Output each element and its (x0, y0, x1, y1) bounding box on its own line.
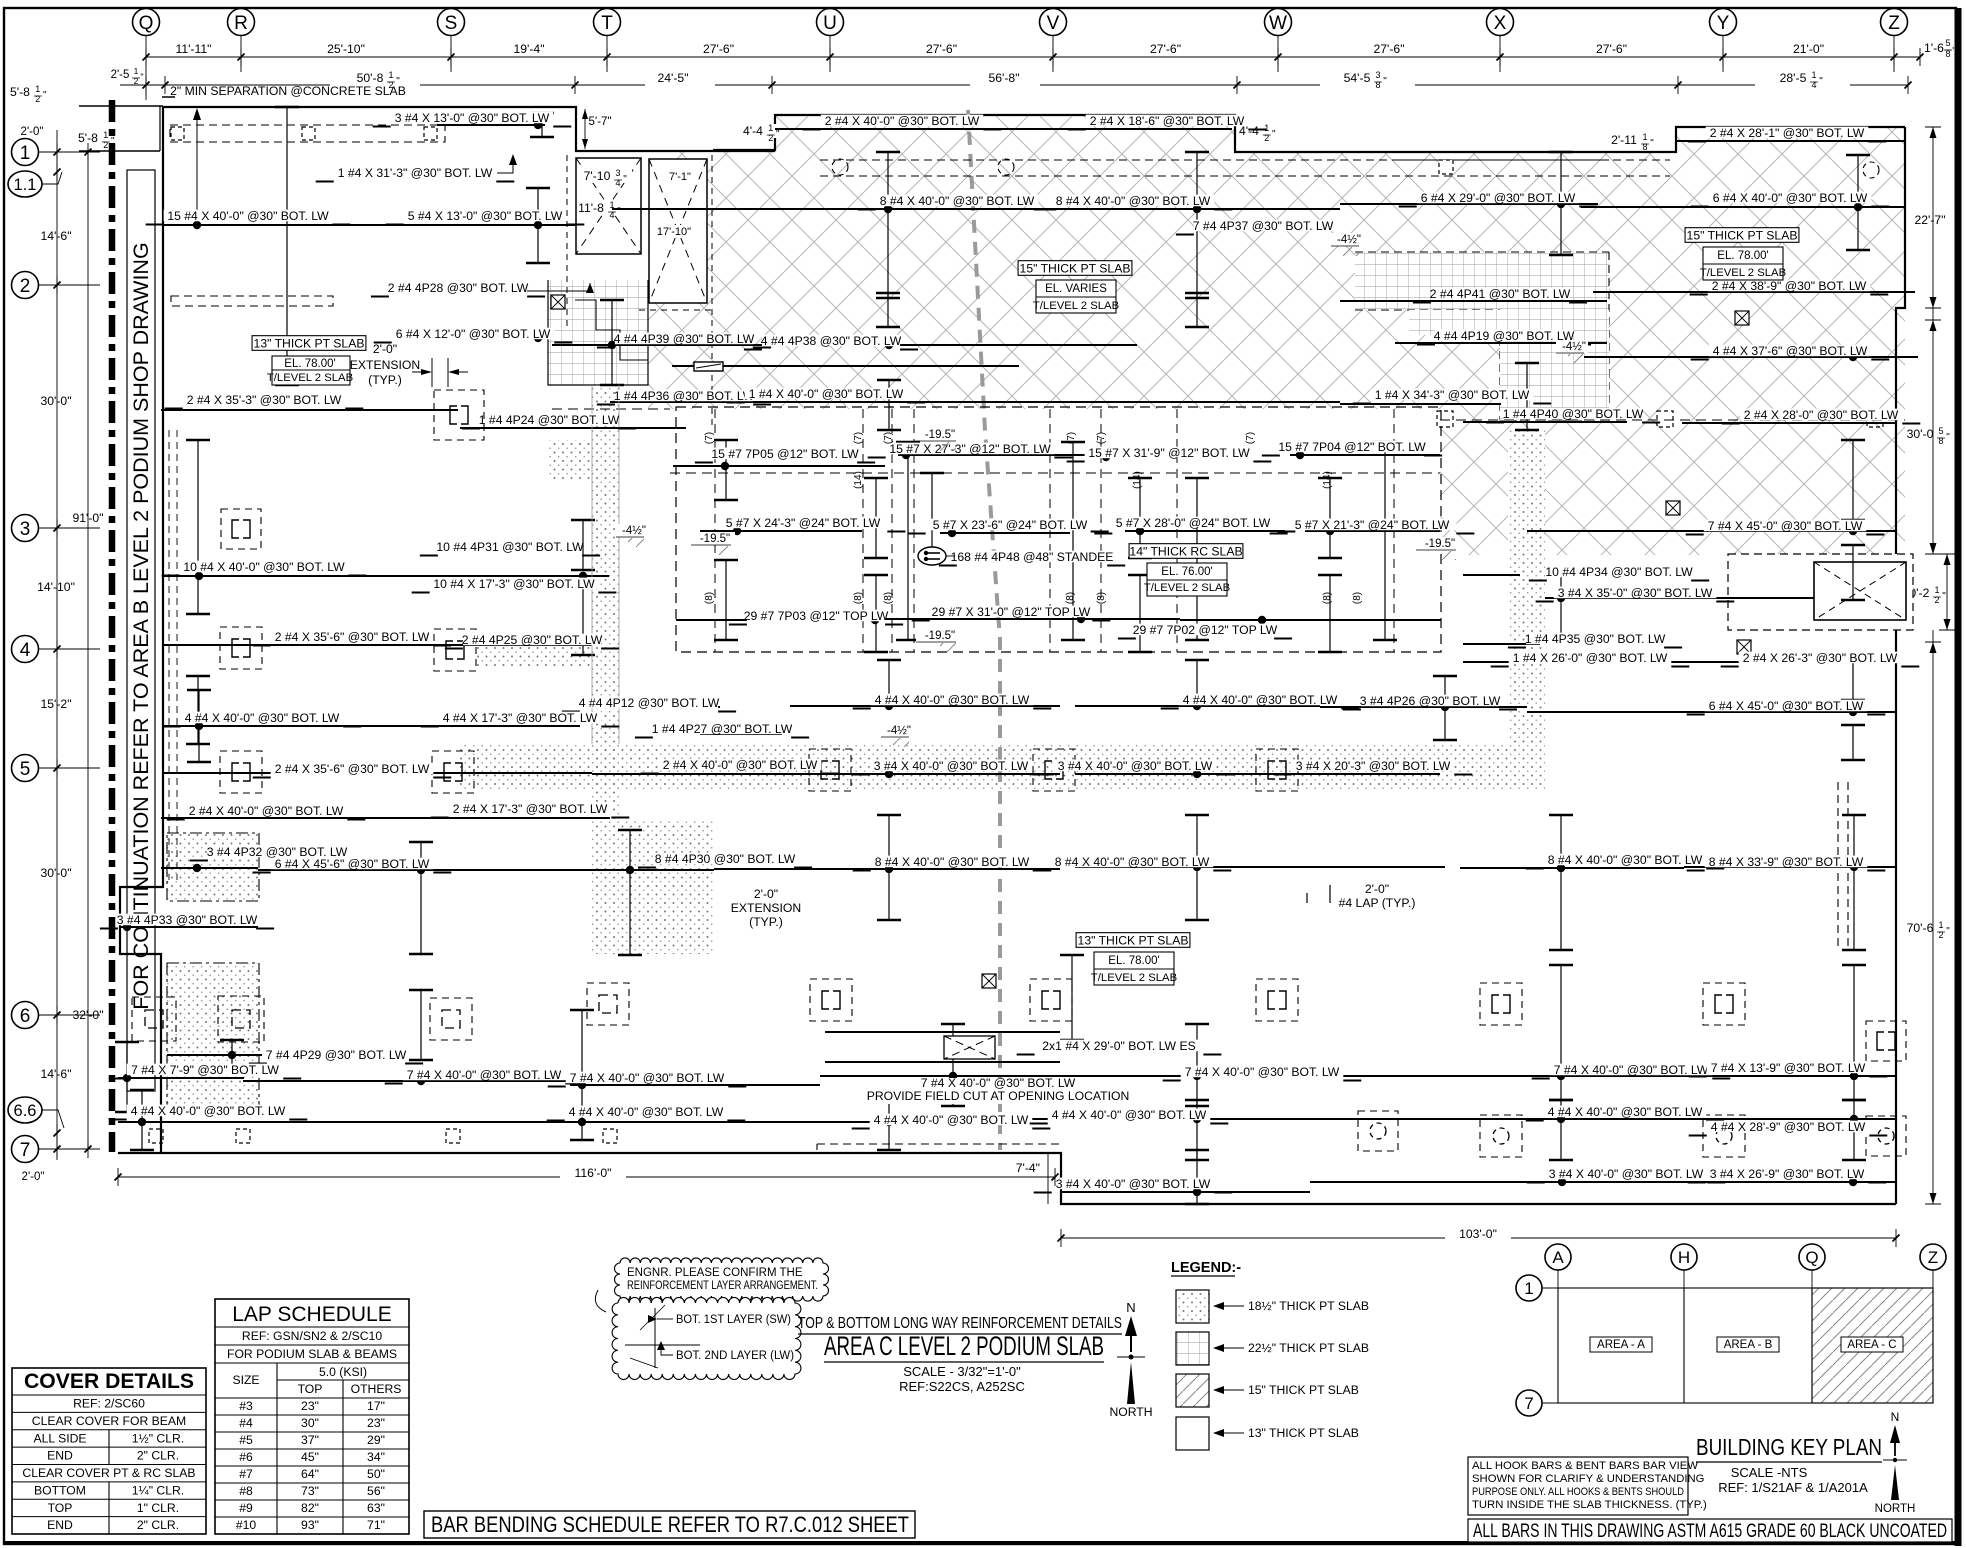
svg-text:1 #4 4P24 @30" BOT. LW: 1 #4 4P24 @30" BOT. LW (479, 413, 620, 427)
svg-text:-4½": -4½" (887, 725, 911, 737)
svg-text:CLEAR COVER FOR BEAM: CLEAR COVER FOR BEAM (32, 1414, 186, 1428)
svg-text:2 #4 X 26'-3" @30" BOT. LW: 2 #4 X 26'-3" @30" BOT. LW (1743, 651, 1898, 665)
svg-text:TOP & BOTTOM LONG WAY REINFORC: TOP & BOTTOM LONG WAY REINFORCEMENT DETA… (798, 1315, 1122, 1332)
svg-text:8: 8 (1938, 436, 1943, 446)
svg-text:SHOWN FOR CLARIFY & UNDERSTAND: SHOWN FOR CLARIFY & UNDERSTANDING (1472, 1473, 1704, 1485)
svg-text:15" THICK PT SLAB: 15" THICK PT SLAB (1248, 1383, 1359, 1397)
svg-text:2'-0": 2'-0" (754, 887, 778, 901)
svg-text:ALL SIDE: ALL SIDE (33, 1431, 86, 1445)
svg-text:30": 30" (301, 1416, 319, 1430)
svg-text:29 #7 X 31'-0" @12" TOP LW: 29 #7 X 31'-0" @12" TOP LW (932, 605, 1091, 619)
svg-text:#4 LAP (TYP.): #4 LAP (TYP.) (1339, 896, 1416, 910)
svg-text:28'-5: 28'-5 (1780, 71, 1807, 85)
svg-text:71": 71" (367, 1518, 385, 1532)
svg-text:1¼" CLR.: 1¼" CLR. (132, 1483, 184, 1497)
svg-text:3 #4 X 26'-9" @30" BOT. LW: 3 #4 X 26'-9" @30" BOT. LW (1710, 1167, 1865, 1181)
svg-text:#7: #7 (239, 1467, 253, 1481)
svg-text:13" THICK PT SLAB: 13" THICK PT SLAB (1078, 933, 1189, 947)
svg-text:1.1: 1.1 (14, 176, 37, 194)
svg-text:1 #4 4P36 @30" BOT. LW: 1 #4 4P36 @30" BOT. LW (614, 389, 755, 403)
svg-text:LEGEND:-: LEGEND:- (1171, 1260, 1241, 1276)
svg-text:7'-4": 7'-4" (1016, 1161, 1040, 1175)
svg-text:2: 2 (35, 94, 40, 104)
svg-text:2: 2 (1264, 133, 1269, 143)
svg-text:2 #4 X 40'-0" @30" BOT. LW: 2 #4 X 40'-0" @30" BOT. LW (189, 804, 344, 818)
svg-text:3 #4 4P26 @30" BOT. LW: 3 #4 4P26 @30" BOT. LW (1360, 694, 1501, 708)
svg-text:3 #4 X 40'-0" @30" BOT. LW: 3 #4 X 40'-0" @30" BOT. LW (1058, 759, 1213, 773)
svg-text:15 #7 X 27'-3" @12" BOT. LW: 15 #7 X 27'-3" @12" BOT. LW (889, 442, 1051, 456)
svg-text:2 #4 X 40'-0" @30" BOT. LW: 2 #4 X 40'-0" @30" BOT. LW (825, 114, 980, 128)
svg-text:TOP: TOP (48, 1501, 73, 1515)
svg-text:1: 1 (35, 84, 40, 94)
svg-text:EL. 78.00': EL. 78.00' (284, 358, 335, 370)
svg-text:": " (1952, 46, 1956, 57)
svg-text:6 #4 X 45'-0" @30" BOT. LW: 6 #4 X 45'-0" @30" BOT. LW (1709, 699, 1864, 713)
svg-text:TURN INSIDE THE SLAB THICKNESS: TURN INSIDE THE SLAB THICKNESS. (TYP.) (1472, 1499, 1707, 1511)
svg-text:EL. VARIES: EL. VARIES (1045, 283, 1107, 295)
svg-text:#10: #10 (236, 1518, 257, 1532)
svg-text:15'-2": 15'-2" (40, 697, 71, 711)
svg-text:3: 3 (1375, 70, 1380, 80)
svg-text:5 #4 X 13'-0" @30" BOT. LW: 5 #4 X 13'-0" @30" BOT. LW (408, 209, 563, 223)
svg-text:73": 73" (301, 1484, 319, 1498)
svg-text:10 #4 4P31 @30" BOT. LW: 10 #4 4P31 @30" BOT. LW (436, 540, 584, 554)
svg-text:X: X (1494, 13, 1507, 34)
svg-text:V: V (1047, 13, 1060, 34)
svg-text:(TYP.): (TYP.) (749, 915, 783, 929)
svg-text:6 #4 X 12'-0" @30" BOT. LW: 6 #4 X 12'-0" @30" BOT. LW (396, 327, 551, 341)
svg-text:2'-0": 2'-0" (22, 1171, 45, 1183)
svg-text:-19.5": -19.5" (925, 429, 955, 441)
svg-text:EL. 78.00': EL. 78.00' (1717, 250, 1768, 262)
svg-text:(8): (8) (883, 592, 894, 604)
svg-text:2 #4 X 35'-6" @30" BOT. LW: 2 #4 X 35'-6" @30" BOT. LW (275, 762, 430, 776)
svg-text:2: 2 (1934, 595, 1939, 605)
svg-text:": " (1383, 76, 1387, 87)
svg-text:R: R (234, 13, 248, 34)
svg-text:168 #4 4P48 @48" STANDEE: 168 #4 4P48 @48" STANDEE (951, 550, 1114, 564)
svg-text:4 #4 X 40'-0" @30" BOT. LW: 4 #4 X 40'-0" @30" BOT. LW (131, 1104, 286, 1118)
svg-text:3: 3 (20, 519, 31, 540)
svg-text:": " (43, 90, 47, 101)
svg-text:SCALE -NTS: SCALE -NTS (1731, 1465, 1808, 1480)
svg-text:7 #4 X 45'-0" @30" BOT. LW: 7 #4 X 45'-0" @30" BOT. LW (1708, 519, 1863, 533)
svg-text:14'-6": 14'-6" (40, 1067, 71, 1081)
svg-text:8: 8 (1945, 49, 1950, 59)
svg-text:(7): (7) (883, 432, 894, 444)
svg-text:COVER DETAILS: COVER DETAILS (24, 1370, 194, 1393)
svg-text:-19.5": -19.5" (925, 630, 955, 642)
svg-text:4 #4 X 40'-0" @30" BOT. LW: 4 #4 X 40'-0" @30" BOT. LW (875, 693, 1030, 707)
svg-text:4: 4 (609, 210, 614, 220)
svg-text:3 #4 X 40'-0" @30" BOT. LW: 3 #4 X 40'-0" @30" BOT. LW (874, 759, 1029, 773)
svg-text:17'-10": 17'-10" (657, 226, 691, 238)
svg-text:U: U (823, 13, 837, 34)
svg-text:1: 1 (20, 143, 31, 164)
svg-text:4 #4 X 40'-0" @30" BOT. LW: 4 #4 X 40'-0" @30" BOT. LW (569, 1105, 724, 1119)
svg-text:4 #4 4P38 @30" BOT. LW: 4 #4 4P38 @30" BOT. LW (761, 334, 902, 348)
svg-text:54'-5: 54'-5 (1344, 71, 1371, 85)
svg-text:1: 1 (1811, 70, 1816, 80)
svg-text:2 #4 X 35'-6" @30" BOT. LW: 2 #4 X 35'-6" @30" BOT. LW (275, 630, 430, 644)
svg-text:#6: #6 (239, 1450, 253, 1464)
svg-text:5: 5 (1945, 38, 1950, 48)
svg-text:REF: GSN/SN2 & 2/SC10: REF: GSN/SN2 & 2/SC10 (242, 1329, 382, 1343)
svg-text:4'-4: 4'-4 (743, 124, 763, 138)
svg-text:15 #7 7P04 @12" BOT. LW: 15 #7 7P04 @12" BOT. LW (1278, 440, 1426, 454)
svg-text:2'-5: 2'-5 (111, 69, 130, 81)
svg-text:2 #4 4P28 @30" BOT. LW: 2 #4 4P28 @30" BOT. LW (388, 281, 529, 295)
svg-text:3 #4 X 35'-0" @30" BOT. LW: 3 #4 X 35'-0" @30" BOT. LW (1558, 586, 1713, 600)
svg-text:#8: #8 (239, 1484, 253, 1498)
svg-text:8 #4 4P30 @30" BOT. LW: 8 #4 4P30 @30" BOT. LW (655, 852, 796, 866)
svg-text:4 #4 4P19 @30" BOT. LW: 4 #4 4P19 @30" BOT. LW (1434, 329, 1575, 343)
svg-text:17": 17" (367, 1399, 385, 1413)
svg-text:": " (1650, 138, 1654, 149)
svg-text:END: END (47, 1449, 73, 1463)
svg-text:1: 1 (1938, 920, 1943, 930)
svg-text:1: 1 (1934, 585, 1939, 595)
svg-text:4: 4 (1811, 80, 1816, 90)
svg-text:(8): (8) (1065, 592, 1076, 604)
svg-text:2 #4 4P25 @30" BOT. LW: 2 #4 4P25 @30" BOT. LW (462, 633, 603, 647)
svg-text:REF:S22CS, A252SC: REF:S22CS, A252SC (899, 1379, 1025, 1394)
svg-text:1: 1 (103, 130, 108, 140)
svg-text:1 #4 4P27 @30" BOT. LW: 1 #4 4P27 @30" BOT. LW (652, 722, 793, 736)
svg-text:6: 6 (20, 1006, 31, 1027)
svg-text:2x1 #4 X 29'-0" BOT. LW ES: 2x1 #4 X 29'-0" BOT. LW ES (1042, 1039, 1195, 1053)
svg-text:2 #4 X 28'-1" @30" BOT. LW: 2 #4 X 28'-1" @30" BOT. LW (1710, 126, 1865, 140)
svg-text:30'-0": 30'-0" (40, 394, 71, 408)
svg-text:LAP SCHEDULE: LAP SCHEDULE (232, 1303, 392, 1326)
svg-text:#3: #3 (239, 1399, 253, 1413)
svg-text:AREA - C: AREA - C (1847, 1339, 1896, 1351)
svg-text:50'-8: 50'-8 (357, 71, 384, 85)
svg-text:(TYP.): (TYP.) (368, 373, 402, 387)
svg-text:27'-6": 27'-6" (1596, 42, 1627, 56)
svg-text:CLEAR COVER PT & RC SLAB: CLEAR COVER PT & RC SLAB (22, 1466, 195, 1480)
svg-text:BAR BENDING SCHEDULE REFER TO: BAR BENDING SCHEDULE REFER TO R7.C.012 S… (431, 1512, 909, 1537)
svg-text:SIZE: SIZE (232, 1373, 259, 1387)
svg-text:5.0 (KSI): 5.0 (KSI) (319, 1365, 367, 1379)
svg-text:-19.5": -19.5" (1425, 538, 1455, 550)
svg-text:(8): (8) (853, 592, 864, 604)
svg-text:1 #4 X 31'-3" @30" BOT. LW: 1 #4 X 31'-3" @30" BOT. LW (338, 166, 493, 180)
svg-text:#4: #4 (239, 1416, 253, 1430)
svg-text:(8): (8) (1096, 592, 1107, 604)
svg-text:2: 2 (103, 140, 108, 150)
svg-text:2'-0": 2'-0" (1365, 882, 1389, 896)
svg-text:BOT. 1ST LAYER (SW): BOT. 1ST LAYER (SW) (676, 1314, 791, 1326)
svg-text:21'-0": 21'-0" (1793, 42, 1824, 56)
svg-text:25'-10": 25'-10" (327, 42, 365, 56)
svg-text:ALL HOOK BARS & BENT BARS BAR: ALL HOOK BARS & BENT BARS BAR VIEW (1472, 1460, 1698, 1472)
svg-text:5 #7 X 21'-3" @24" BOT. LW: 5 #7 X 21'-3" @24" BOT. LW (1295, 518, 1450, 532)
svg-text:(7): (7) (1096, 432, 1107, 444)
svg-text:10 #4 X 40'-0" @30" BOT. LW: 10 #4 X 40'-0" @30" BOT. LW (183, 560, 345, 574)
svg-text:Z: Z (1928, 1248, 1938, 1267)
svg-text:AREA C LEVEL 2 PODIUM SLAB: AREA C LEVEL 2 PODIUM SLAB (824, 1331, 1104, 1361)
svg-text:1 #4 X 40'-0" @30" BOT. LW: 1 #4 X 40'-0" @30" BOT. LW (749, 387, 904, 401)
svg-text:6 #4 X 40'-0" @30" BOT. LW: 6 #4 X 40'-0" @30" BOT. LW (1713, 191, 1868, 205)
svg-text:2'-0": 2'-0" (21, 126, 44, 138)
svg-text:EL. 78.00': EL. 78.00' (1108, 955, 1159, 967)
svg-text:11'-8: 11'-8 (578, 201, 604, 215)
svg-text:22'-7": 22'-7" (1914, 213, 1945, 227)
svg-text:BOTTOM: BOTTOM (34, 1483, 86, 1497)
svg-text:AREA - B: AREA - B (1724, 1339, 1773, 1351)
svg-text:8 #4 X 33'-9" @30" BOT. LW: 8 #4 X 33'-9" @30" BOT. LW (1709, 855, 1864, 869)
svg-text:4: 4 (20, 640, 31, 661)
svg-text:": " (1819, 76, 1823, 87)
svg-text:4 #4 X 17'-3" @30" BOT. LW: 4 #4 X 17'-3" @30" BOT. LW (443, 711, 598, 725)
svg-text:H: H (1678, 1248, 1690, 1267)
svg-text:TOP: TOP (298, 1382, 323, 1396)
svg-text:(14): (14) (1132, 471, 1143, 489)
svg-text:T/LEVEL 2 SLAB: T/LEVEL 2 SLAB (267, 372, 353, 384)
svg-text:-19.5": -19.5" (700, 533, 730, 545)
svg-text:S: S (445, 13, 458, 34)
svg-text:BUILDING KEY PLAN: BUILDING KEY PLAN (1696, 1434, 1882, 1460)
svg-text:#9: #9 (239, 1501, 253, 1515)
svg-text:10 #4 X 17'-3" @30" BOT. LW: 10 #4 X 17'-3" @30" BOT. LW (433, 577, 595, 591)
svg-text:A: A (1552, 1248, 1564, 1267)
svg-text:1½" CLR.: 1½" CLR. (132, 1431, 184, 1445)
svg-text:4 #4 X 28'-9" @30" BOT. LW: 4 #4 X 28'-9" @30" BOT. LW (1711, 1120, 1866, 1134)
svg-text:23": 23" (367, 1416, 385, 1430)
svg-text:103'-0": 103'-0" (1459, 1227, 1497, 1241)
svg-text:T/LEVEL 2 SLAB: T/LEVEL 2 SLAB (1091, 972, 1177, 984)
svg-text:5 #7 X 23'-6" @24" BOT. LW: 5 #7 X 23'-6" @24" BOT. LW (933, 518, 1088, 532)
svg-text:3 #4 X 20'-3" @30" BOT. LW: 3 #4 X 20'-3" @30" BOT. LW (1296, 759, 1451, 773)
svg-text:(8): (8) (1352, 592, 1363, 604)
svg-text:Z: Z (1888, 13, 1900, 34)
svg-text:50": 50" (367, 1467, 385, 1481)
svg-text:56'-8": 56'-8" (988, 71, 1019, 85)
svg-text:2'-0": 2'-0" (373, 342, 397, 356)
svg-text:BOT. 2ND LAYER (LW): BOT. 2ND LAYER (LW) (676, 1350, 794, 1362)
svg-text:29 #7 7P02 @12" TOP LW: 29 #7 7P02 @12" TOP LW (1133, 623, 1278, 637)
svg-text:2: 2 (20, 276, 31, 297)
svg-text:4: 4 (615, 178, 620, 188)
svg-text:34": 34" (367, 1450, 385, 1464)
svg-text:8: 8 (1642, 142, 1647, 152)
svg-text:1: 1 (388, 70, 393, 80)
svg-text:3 #4 X 40'-0" @30" BOT. LW: 3 #4 X 40'-0" @30" BOT. LW (1056, 1177, 1211, 1191)
svg-text:29": 29" (367, 1433, 385, 1447)
svg-text:5: 5 (1938, 426, 1943, 436)
svg-text:REF: 2/SC60: REF: 2/SC60 (73, 1397, 145, 1411)
svg-text:N: N (1891, 1410, 1900, 1424)
svg-text:30'-0: 30'-0 (1907, 427, 1934, 441)
svg-text:7 #4 X 7'-9" @30" BOT. LW: 7 #4 X 7'-9" @30" BOT. LW (131, 1063, 279, 1077)
svg-text:10 #4 4P34 @30" BOT. LW: 10 #4 4P34 @30" BOT. LW (1545, 565, 1693, 579)
svg-text:W: W (1269, 13, 1287, 34)
svg-text:4 #4 4P39 @30" BOT. LW: 4 #4 4P39 @30" BOT. LW (614, 332, 755, 346)
svg-text:5: 5 (20, 759, 31, 780)
svg-text:15 #4 X 40'-0" @30" BOT. LW: 15 #4 X 40'-0" @30" BOT. LW (167, 209, 329, 223)
svg-text:EXTENSION: EXTENSION (731, 901, 801, 915)
svg-text:4 #4 X 40'-0" @30" BOT. LW: 4 #4 X 40'-0" @30" BOT. LW (1183, 693, 1338, 707)
svg-text:91'-0": 91'-0" (72, 511, 103, 525)
svg-text:2" CLR.: 2" CLR. (137, 1518, 179, 1532)
svg-text:(7): (7) (1066, 432, 1077, 444)
svg-text:#5: #5 (239, 1433, 253, 1447)
svg-text:1 #4 4P35 @30" BOT. LW: 1 #4 4P35 @30" BOT. LW (1525, 632, 1666, 646)
svg-text:93": 93" (301, 1518, 319, 1532)
svg-text:EL. 76.00': EL. 76.00' (1161, 566, 1212, 578)
svg-text:27'-6": 27'-6" (926, 42, 957, 56)
svg-text:EXTENSION: EXTENSION (350, 358, 420, 372)
svg-text:22½" THICK PT SLAB: 22½" THICK PT SLAB (1248, 1341, 1369, 1355)
svg-text:PROVIDE FIELD CUT AT OPENING L: PROVIDE FIELD CUT AT OPENING LOCATION (867, 1089, 1130, 1103)
svg-text:7 #4 X 40'-0" @30" BOT. LW: 7 #4 X 40'-0" @30" BOT. LW (921, 1076, 1076, 1090)
svg-text:T/LEVEL 2 SLAB: T/LEVEL 2 SLAB (1700, 267, 1786, 279)
svg-text:2 #4 X 40'-0" @30" BOT. LW: 2 #4 X 40'-0" @30" BOT. LW (663, 758, 818, 772)
svg-text:PURPOSE ONLY. ALL HOOKS & BENT: PURPOSE ONLY. ALL HOOKS & BENTS SHOULD (1472, 1486, 1684, 1498)
svg-text:": " (1946, 432, 1950, 443)
svg-text:1 #4 X 34'-3" @30" BOT. LW: 1 #4 X 34'-3" @30" BOT. LW (1375, 388, 1530, 402)
svg-text:8 #4 X 40'-0" @30" BOT. LW: 8 #4 X 40'-0" @30" BOT. LW (1055, 855, 1210, 869)
svg-text:27'-6": 27'-6" (1373, 42, 1404, 56)
svg-text:29 #7 7P03 @12" TOP LW: 29 #7 7P03 @12" TOP LW (744, 609, 889, 623)
svg-text:2 #4 X 38'-9" @30" BOT. LW: 2 #4 X 38'-9" @30" BOT. LW (1712, 279, 1867, 293)
svg-text:64": 64" (301, 1467, 319, 1481)
svg-text:END: END (47, 1518, 73, 1532)
svg-text:2 #4 4P41 @30" BOT. LW: 2 #4 4P41 @30" BOT. LW (1430, 287, 1571, 301)
svg-text:13" THICK PT SLAB: 13" THICK PT SLAB (1248, 1426, 1359, 1440)
svg-text:2 #4 X 18'-6" @30" BOT. LW: 2 #4 X 18'-6" @30" BOT. LW (1090, 114, 1245, 128)
svg-text:SCALE - 3/32"=1'-0": SCALE - 3/32"=1'-0" (903, 1364, 1021, 1379)
svg-text:(14): (14) (1322, 471, 1333, 489)
svg-text:4 #4 X 40'-0" @30" BOT. LW: 4 #4 X 40'-0" @30" BOT. LW (874, 1113, 1029, 1127)
svg-text:(14): (14) (853, 471, 864, 489)
svg-text:4 #4 X 40'-0" @30" BOT. LW: 4 #4 X 40'-0" @30" BOT. LW (1052, 1108, 1207, 1122)
svg-text:2'-11: 2'-11 (1611, 133, 1637, 147)
svg-text:Q: Q (1805, 1248, 1818, 1267)
svg-text:(8): (8) (1322, 592, 1333, 604)
svg-text:1 #4 4P40 @30" BOT. LW: 1 #4 4P40 @30" BOT. LW (1503, 407, 1644, 421)
svg-text:(7): (7) (853, 432, 864, 444)
svg-text:14'-6": 14'-6" (40, 229, 71, 243)
svg-text:7 #4 4P29 @30" BOT. LW: 7 #4 4P29 @30" BOT. LW (266, 1048, 407, 1062)
svg-text:": " (1942, 591, 1946, 602)
svg-text:7 #4 X 13'-9" @30" BOT. LW: 7 #4 X 13'-9" @30" BOT. LW (1711, 1061, 1866, 1075)
svg-text:1: 1 (1264, 123, 1269, 133)
svg-text:15" THICK PT SLAB: 15" THICK PT SLAB (1020, 261, 1131, 275)
svg-text:7: 7 (1524, 1394, 1533, 1413)
svg-text:116'-0": 116'-0" (575, 1166, 612, 1180)
svg-text:5'-8: 5'-8 (78, 131, 98, 145)
svg-text:NORTH: NORTH (1875, 1503, 1916, 1515)
svg-text:FOR PODIUM SLAB & BEAMS: FOR PODIUM SLAB & BEAMS (227, 1347, 397, 1361)
svg-text:45": 45" (301, 1450, 319, 1464)
svg-text:": " (1946, 926, 1950, 937)
svg-text:27'-6": 27'-6" (703, 42, 734, 56)
svg-text:1'-6: 1'-6 (1924, 41, 1944, 55)
svg-text:": " (776, 129, 780, 140)
svg-text:8: 8 (1375, 80, 1380, 90)
svg-text:3: 3 (615, 168, 620, 178)
svg-text:13" THICK PT SLAB: 13" THICK PT SLAB (254, 336, 365, 350)
svg-text:": " (140, 72, 143, 82)
svg-text:7'-1": 7'-1" (669, 171, 691, 183)
svg-text:6 #4 X 45'-6" @30" BOT. LW: 6 #4 X 45'-6" @30" BOT. LW (275, 857, 430, 871)
svg-text:8 #4 X 40'-0" @30" BOT. LW: 8 #4 X 40'-0" @30" BOT. LW (875, 855, 1030, 869)
svg-text:15 #7 X 31'-9" @12" BOT. LW: 15 #7 X 31'-9" @12" BOT. LW (1088, 446, 1250, 460)
svg-text:5 #7 X 28'-0" @24" BOT. LW: 5 #7 X 28'-0" @24" BOT. LW (1116, 516, 1271, 530)
svg-text:(7): (7) (1245, 432, 1256, 444)
svg-text:24'-5": 24'-5" (657, 71, 688, 85)
svg-text:11'-11": 11'-11" (175, 42, 211, 56)
svg-text:2: 2 (134, 76, 139, 86)
svg-text:2 #4 X 28'-0" @30" BOT. LW: 2 #4 X 28'-0" @30" BOT. LW (1744, 408, 1899, 422)
svg-text:82": 82" (301, 1501, 319, 1515)
svg-text:REINFORCEMENT LAYER ARRANGEMEN: REINFORCEMENT LAYER ARRANGEMENT. (627, 1280, 818, 1292)
svg-text:2" CLR.: 2" CLR. (137, 1449, 179, 1463)
svg-text:2 #4 X 35'-3" @30" BOT. LW: 2 #4 X 35'-3" @30" BOT. LW (187, 393, 342, 407)
svg-text:1: 1 (134, 66, 139, 76)
svg-text:REF: 1/S21AF & 1/A201A: REF: 1/S21AF & 1/A201A (1718, 1480, 1868, 1495)
svg-text:8 #4 X 40'-0" @30" BOT. LW: 8 #4 X 40'-0" @30" BOT. LW (1548, 853, 1703, 867)
svg-text:3 #4 4P33 @30" BOT. LW: 3 #4 4P33 @30" BOT. LW (117, 913, 258, 927)
svg-text:N: N (1126, 1300, 1135, 1315)
svg-text:5 #7 X 24'-3" @24" BOT. LW: 5 #7 X 24'-3" @24" BOT. LW (726, 516, 881, 530)
svg-text:15 #7 7P05 @12" BOT. LW: 15 #7 7P05 @12" BOT. LW (711, 447, 859, 461)
svg-text:4 #4 4P12 @30" BOT. LW: 4 #4 4P12 @30" BOT. LW (579, 696, 720, 710)
svg-text:OTHERS: OTHERS (351, 1382, 402, 1396)
svg-text:Q: Q (139, 13, 154, 34)
svg-text:27'-6": 27'-6" (1150, 42, 1181, 56)
svg-text:": " (1272, 129, 1276, 140)
svg-text:2 #4 X 17'-3" @30" BOT. LW: 2 #4 X 17'-3" @30" BOT. LW (453, 802, 608, 816)
svg-text:3 #4 X 40'-0" @30" BOT. LW: 3 #4 X 40'-0" @30" BOT. LW (1549, 1167, 1704, 1181)
svg-text:7 #4 X 40'-0" @30" BOT. LW: 7 #4 X 40'-0" @30" BOT. LW (570, 1071, 725, 1085)
svg-text:ALL BARS IN THIS DRAWING ASTM: ALL BARS IN THIS DRAWING ASTM A615 GRADE… (1473, 1520, 1947, 1542)
svg-text:1 #4 X 26'-0" @30" BOT. LW: 1 #4 X 26'-0" @30" BOT. LW (1513, 651, 1668, 665)
svg-text:-4½": -4½" (1337, 234, 1361, 246)
svg-text:4 #4 X 37'-6" @30" BOT. LW: 4 #4 X 37'-6" @30" BOT. LW (1713, 344, 1868, 358)
svg-text:7 #4 X 40'-0" @30" BOT. LW: 7 #4 X 40'-0" @30" BOT. LW (407, 1068, 562, 1082)
svg-text:-4½": -4½" (622, 525, 646, 537)
svg-text:14" THICK RC SLAB: 14" THICK RC SLAB (1129, 544, 1242, 558)
svg-text:7 #4 X 40'-0" @30" BOT. LW: 7 #4 X 40'-0" @30" BOT. LW (1185, 1065, 1340, 1079)
svg-text:4 #4 X 40'-0" @30" BOT. LW: 4 #4 X 40'-0" @30" BOT. LW (1548, 1105, 1703, 1119)
svg-text:(7): (7) (704, 432, 715, 444)
svg-text:": " (617, 206, 621, 217)
svg-text:7 #4 X 40'-0" @30" BOT. LW: 7 #4 X 40'-0" @30" BOT. LW (1554, 1063, 1709, 1077)
svg-text:15" THICK PT SLAB: 15" THICK PT SLAB (1687, 228, 1798, 242)
svg-text:63": 63" (367, 1501, 385, 1515)
svg-text:7: 7 (20, 1140, 31, 1161)
svg-text:2" MIN SEPARATION @CONCRETE SL: 2" MIN SEPARATION @CONCRETE SLAB (170, 84, 406, 98)
svg-text:2: 2 (1938, 930, 1943, 940)
svg-text:T/LEVEL 2 SLAB: T/LEVEL 2 SLAB (1033, 300, 1119, 312)
svg-text:19'-4": 19'-4" (513, 42, 544, 56)
svg-text:1" CLR.: 1" CLR. (137, 1501, 179, 1515)
svg-text:6 #4 X 29'-0" @30" BOT. LW: 6 #4 X 29'-0" @30" BOT. LW (1421, 191, 1576, 205)
svg-text:NORTH: NORTH (1109, 1405, 1152, 1419)
svg-text:5'-8: 5'-8 (10, 85, 30, 99)
svg-text:8 #4 X 40'-0" @30" BOT. LW: 8 #4 X 40'-0" @30" BOT. LW (880, 194, 1035, 208)
svg-text:14'-10": 14'-10" (37, 580, 75, 594)
svg-text:4 #4 X 40'-0" @30" BOT. LW: 4 #4 X 40'-0" @30" BOT. LW (185, 711, 340, 725)
svg-text:7'-10: 7'-10 (584, 169, 611, 183)
svg-text:(8): (8) (704, 592, 715, 604)
svg-text:37": 37" (301, 1433, 319, 1447)
svg-text:T/LEVEL 2 SLAB: T/LEVEL 2 SLAB (1144, 582, 1230, 594)
svg-text:30'-0": 30'-0" (40, 866, 71, 880)
